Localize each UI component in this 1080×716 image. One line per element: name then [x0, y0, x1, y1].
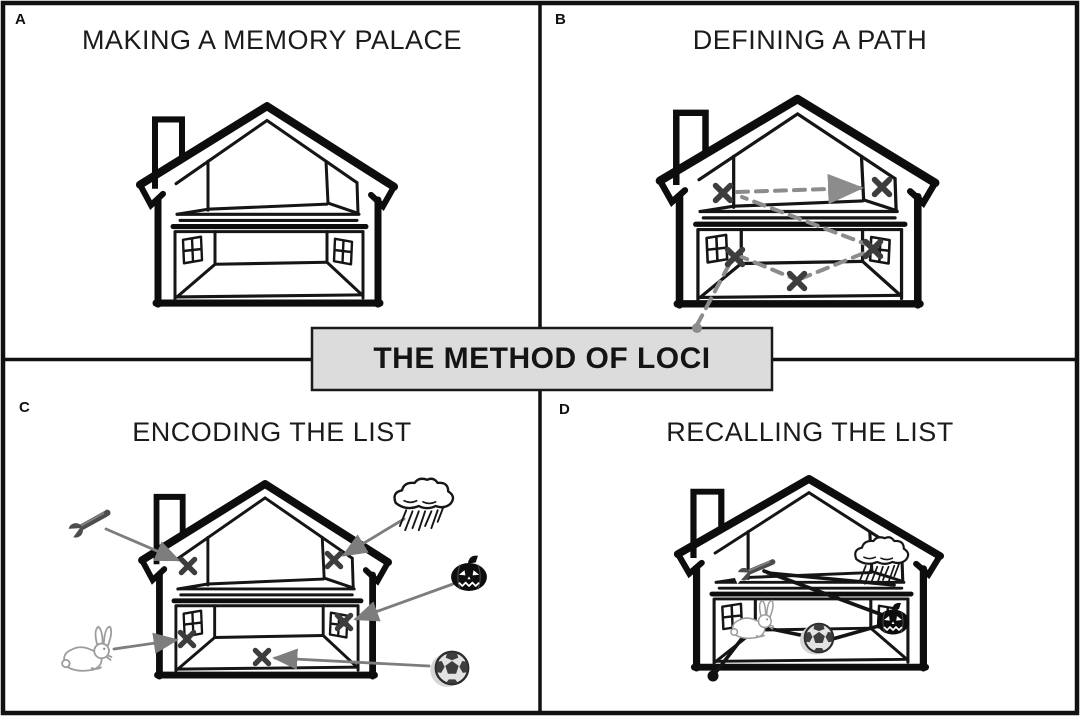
panel-b-label: B — [555, 12, 566, 27]
panel-b-title: DEFINING A PATH — [544, 26, 1076, 56]
method-of-loci-figure: A B C D MAKING A MEMORY PALACE DEFINING … — [0, 0, 1080, 716]
panel-d-title: RECALLING THE LIST — [544, 418, 1076, 448]
path-start-dot-icon — [708, 671, 719, 682]
panel-c-label: C — [19, 400, 30, 415]
panel-a-label: A — [15, 12, 26, 27]
panel-a-title: MAKING A MEMORY PALACE — [4, 26, 540, 56]
panel-c-title: ENCODING THE LIST — [4, 418, 540, 448]
panel-d-label: D — [559, 402, 570, 417]
center-title: THE METHOD OF LOCI — [312, 328, 772, 390]
